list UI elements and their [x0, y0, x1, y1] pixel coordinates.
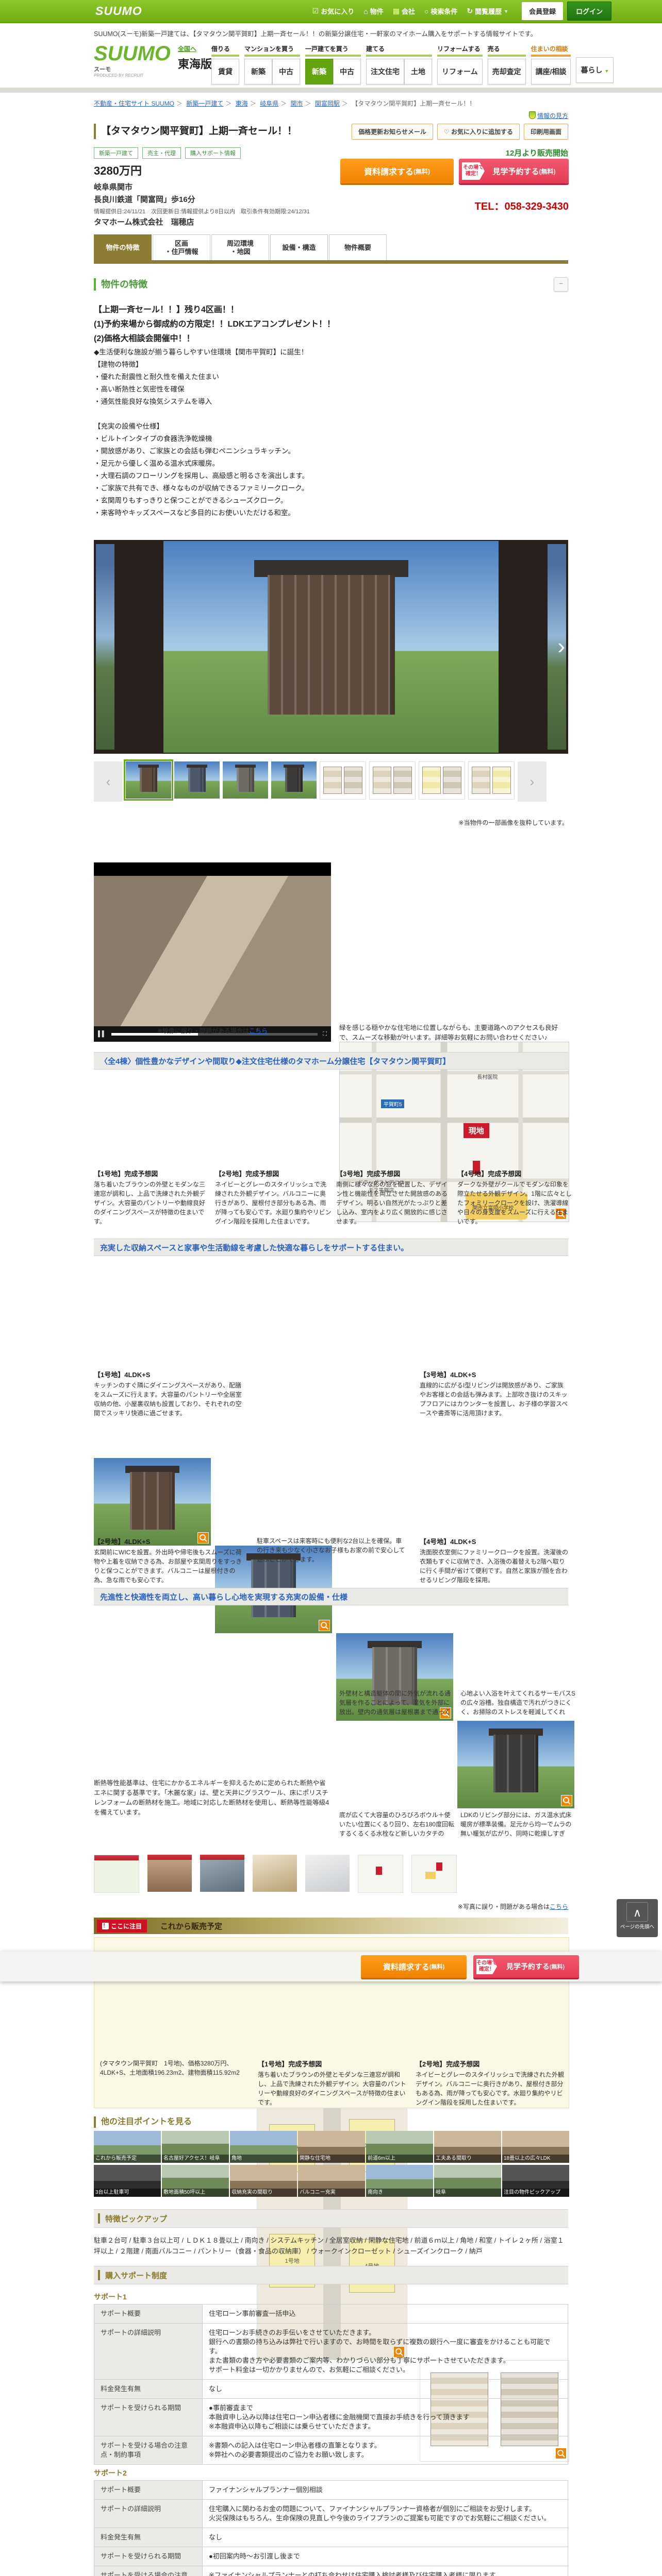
equipment-thumb[interactable] [147, 1855, 192, 1892]
crumb-current: 【タマタウン関平賀町】上期一斉セール！！ [352, 100, 475, 107]
global-nav: ☑お気に入り ⌂物件 ▦会社 ○検索条件 ↻閲覧履歴▼ [312, 6, 508, 16]
point-tile[interactable]: 角地 [230, 2131, 297, 2163]
crumb-sekitomioka[interactable]: 関富岡駅 [315, 100, 340, 107]
info-guide-row: 情報の見方 [94, 111, 568, 120]
gallery-thumb[interactable] [419, 761, 465, 800]
global-header: SUUMO ☑お気に入り ⌂物件 ▦会社 ○検索条件 ↻閲覧履歴▼ 会員登録 ロ… [0, 0, 662, 23]
suumo-logo-main[interactable]: SUUMO スーモ PRODUCED BY RECRUIT [94, 43, 171, 78]
cat-mansion: マンションを買う 新築中古 [244, 44, 300, 84]
point-tile[interactable]: 注目の物件ピックアップ [502, 2165, 569, 2197]
point-tile[interactable]: 閑静な住宅地 [298, 2131, 365, 2163]
suumo-logo-top[interactable]: SUUMO [95, 4, 142, 18]
washstand-caption: 底が広くて大容量のひろびろボウル＋使いたい位置にくるり回り、左右180度回転する… [339, 1810, 455, 1838]
chevron-down-icon: ▼ [504, 9, 508, 14]
tab-chumon[interactable]: 注文住宅 [366, 59, 404, 84]
chevron-down-icon: ▼ [604, 69, 609, 74]
collapse-button[interactable]: − [554, 277, 568, 292]
edition-block: 全国へ 東海版 [178, 44, 212, 72]
gallery-thumb[interactable] [223, 761, 268, 799]
tab-kurashi[interactable]: 暮らし ▼ [576, 57, 614, 83]
tag-shinchiku: 新築一戸建て [94, 147, 138, 159]
thumbs-next-arrow[interactable]: › [518, 761, 547, 802]
tab-underline [94, 260, 568, 264]
gallery-thumb[interactable] [174, 761, 220, 799]
visit-reserve-button[interactable]: その場で 確定！ 見学予約する(無料) [459, 159, 569, 183]
request-docs-button[interactable]: 資料請求する(無料) [340, 159, 454, 183]
equipment-thumb[interactable] [305, 1855, 350, 1892]
nav-search-conditions[interactable]: ○検索条件 [424, 6, 457, 16]
house-caption-2: 【2号地】完成予想図ネイビーとグレーのスタイリッシュで洗練された外観デザイン。バ… [215, 1168, 332, 1226]
support1-label: サポート1 [94, 2292, 568, 2302]
cat-rent: 借りる 賃貸 [211, 44, 239, 84]
nav-favorites[interactable]: ☑お気に入り [312, 6, 355, 16]
house-icon: ⌂ [363, 7, 368, 15]
feature-bullets: ◆生活便利な施設が揃う暮らしやすい住環境【関市平賀町】に誕生！ 【建物の特徴】 … [94, 346, 568, 519]
cat-tateru: 建てる 注文住宅土地 [366, 44, 432, 84]
point-tile[interactable]: 前道6m以上 [366, 2131, 433, 2163]
cat-uru: 売る 売却査定 [488, 44, 526, 84]
building-icon: ▦ [393, 7, 400, 15]
phone-number[interactable]: TEL：058-329-3430 [434, 198, 569, 213]
title-buttons: 価格更新お知らせメール ♡ お気に入りに追加する 印刷用画面 [352, 124, 568, 140]
point-tile[interactable]: 南向き [366, 2165, 433, 2197]
crumb-suumo[interactable]: 不動産・住宅サイト SUUMO [94, 100, 174, 107]
point-tile[interactable]: 3台以上駐車可 [94, 2165, 161, 2197]
nav-properties[interactable]: ⌂物件 [363, 6, 383, 16]
tab-kouza[interactable]: 講座/相談 [531, 59, 571, 84]
property-title-row: 【タマタウン関平賀町】上期一斉セール！！ 価格更新お知らせメール ♡ お気に入り… [94, 124, 568, 140]
breadcrumb: 不動産・住宅サイト SUUMO＞ 新築一戸建て＞ 東海＞ 岐阜県＞ 関市＞ 関富… [94, 99, 568, 108]
cat-reform: リフォームする リフォーム [437, 44, 483, 84]
info-guide-link[interactable]: 情報の見方 [537, 112, 568, 120]
tab-kodate-used[interactable]: 中古 [333, 59, 361, 84]
nav-company[interactable]: ▦会社 [393, 6, 415, 16]
sticky-visit-button[interactable]: その場で 確定！見学予約する(無料) [473, 1955, 579, 1978]
plan-caption-2: 【2号地】4LDK+S玄関前にWICを設置。外出時や帰宅後もスムーズに荷物や上着… [94, 1536, 243, 1585]
plan-caption-1: 【1号地】4LDK+Sキッチンのすぐ隣にダイニングスペースがあり、配膳をスムーズ… [94, 1369, 243, 1418]
ventilation-caption: 外壁材と構造躯体の間に外気が流れる通気層を作ることによって、湿気を外部に放出。壁… [339, 1689, 455, 1717]
point-tile[interactable]: 岐阜 [434, 2165, 501, 2197]
video-report-link[interactable]: こちら [249, 1027, 268, 1035]
gallery-next-arrow[interactable]: › [557, 635, 565, 658]
map-label: 長村医院 [477, 1073, 498, 1080]
point-tile[interactable]: 工夫ある間取り [434, 2131, 501, 2163]
points-heading: 他の注目ポイントを見る [94, 2116, 575, 2128]
plans-banner: 充実した収納スペースと家事や生活動線を考慮した快適な暮らしをサポートする住まい。 [94, 1239, 568, 1256]
page-title: 【タマタウン関平賀町】上期一斉セール！！ [94, 124, 297, 139]
property-video[interactable]: ▌▌ ⛶ [94, 862, 331, 1042]
sale-lines: 【上期一斉セール！！】残り4区画！！(1)予約来場から御成約の方限定！！LDKエ… [94, 303, 568, 346]
category-nav: 借りる 賃貸 マンションを買う 新築中古 一戸建てを買う 新築中古 建てる 注文… [211, 44, 614, 84]
support2-label: サポート2 [94, 2468, 568, 2478]
tab-mansion-new[interactable]: 新築 [244, 59, 272, 84]
thumbs-prev-arrow[interactable]: ‹ [94, 761, 123, 802]
tab-map[interactable]: 周辺環境 ・地図 [211, 234, 269, 261]
on-the-spot-flag: その場で 確定！ [462, 162, 485, 180]
house-image-1 [94, 1458, 211, 1546]
house-image-4 [457, 1721, 574, 1808]
map-label: 平賀町5 [381, 1099, 405, 1108]
gallery-thumb[interactable] [126, 761, 171, 799]
map-genchi-label: 現地 [464, 1123, 489, 1138]
house-caption-3: 【3号地】完成予想図南側に様々な形の窓を配置した、デザイン性と機能性を両立させた… [336, 1168, 453, 1226]
upcoming-caption-2: 【2号地】完成予想図ネイビーとグレーのスタイリッシュで洗練された外観デザイン。バ… [416, 2059, 567, 2107]
point-tile[interactable]: 名古屋好アクセス！岐阜 [162, 2131, 229, 2163]
equipment-thumb[interactable] [200, 1855, 244, 1892]
gallery-thumb[interactable] [271, 761, 317, 799]
tab-reform[interactable]: リフォーム [437, 59, 483, 84]
point-tile[interactable]: 敷地面積50坪以上 [162, 2165, 229, 2197]
property-tags: 新築一戸建て 売主・代理 購入サポート情報 12月より販売開始 [94, 147, 568, 159]
equipment-thumb[interactable] [94, 1855, 139, 1893]
house-caption-4: 【4号地】完成予想図ダークな外壁がクールでモダンな印象を際立たせる外観デザイン。… [457, 1168, 574, 1226]
point-tile[interactable]: バルコニー充実 [298, 2165, 365, 2197]
houses-banner: 〈全4棟〉個性豊かなデザインや間取り◆注文住宅仕様のタマホーム分譲住宅【タマタウ… [94, 1052, 568, 1070]
tag-urinushi: 売主・代理 [142, 147, 181, 159]
gallery-thumb[interactable] [320, 761, 366, 800]
search-icon: ○ [424, 7, 428, 15]
tab-equipment[interactable]: 設備・構造 [270, 234, 328, 261]
bath-caption: 心地よい入浴を叶えてくれるサーモバスSの広々浴槽。独自構造で汚れがつきにくく、お… [460, 1689, 577, 1717]
photo-note: ※写真に誤り・問題がある場合はこちら [94, 1902, 568, 1911]
cat-kurashi: 暮らし ▼ [576, 44, 614, 84]
equipment-thumb[interactable] [253, 1855, 297, 1892]
sticky-cta-bar: 資料請求する(無料) その場で 確定！見学予約する(無料) [0, 1952, 662, 1981]
crumb-shinchiku[interactable]: 新築一戸建て [186, 100, 223, 107]
gallery-main-image [163, 541, 499, 753]
point-tile[interactable]: これから販売予定 [94, 2131, 161, 2163]
insulation-caption: 断熱等性能基準は、住宅にかかるエネルギーを抑えるために定められた断熱や省エネに関… [94, 1778, 331, 1818]
cat-soudan: 住まいの相談 講座/相談 [531, 44, 571, 84]
history-icon: ↻ [467, 7, 473, 15]
signup-button[interactable]: 会員登録 [522, 2, 563, 20]
map-caption: 緑を感じる穏やかな住宅地に位置しながらも、主要道路へのアクセスも良好で、スムーズ… [339, 1023, 568, 1043]
attention-label: ！ここに注目 [97, 1920, 147, 1933]
tag-support[interactable]: 購入サポート情報 [185, 147, 241, 159]
pickup-heading: 特徴ピックアップ [94, 2209, 568, 2228]
support2-table: サポート概要ファイナンシャルプランナー個別相談 サポートの詳細説明住宅購入に関わ… [94, 2480, 568, 2576]
tab-units[interactable]: 区画 ・住戸情報 [153, 234, 210, 261]
point-tile[interactable]: 18畳以上の広々LDK [502, 2131, 569, 2163]
pickup-text: 駐車２台可 / 駐車３台以上可 / ＬＤＫ１８畳以上 / 南向き / システムキ… [94, 2235, 568, 2257]
gallery-note: ※当物件の一部画像を抜粋しています。 [94, 818, 568, 827]
tab-overview[interactable]: 物件概要 [329, 234, 387, 261]
check-icon: ☑ [312, 7, 319, 15]
tab-kodate-new-active[interactable]: 新築 [305, 59, 333, 84]
photo-gallery: › [94, 540, 568, 754]
siteplan-caption: 駐車スペースは来客時にも便利な2台以上を確保。車の行き来も少なく小さなお子様もお… [257, 1536, 406, 1564]
zoom-icon[interactable] [319, 1620, 330, 1631]
sale-status: 12月より販売開始 [506, 147, 568, 158]
property-tabs: 物件の特徴 区画 ・住戸情報 周辺環境 ・地図 設備・構造 物件概要 [94, 234, 568, 261]
site-tagline: SUUMO(スーモ)新築一戸建ては、【タマタウン関平賀町】上期一斉セール！！の新… [94, 28, 568, 38]
up-arrow-icon: ∧ [626, 1902, 648, 1922]
zoom-icon[interactable] [561, 1795, 572, 1806]
tab-features[interactable]: 物件の特徴 [94, 234, 152, 261]
crumb-tokai[interactable]: 東海 [236, 100, 248, 107]
support-heading: 購入サポート制度 [94, 2266, 568, 2284]
gallery-prev-sliver[interactable] [96, 544, 114, 750]
tab-baikyaku[interactable]: 売却査定 [488, 59, 526, 84]
plan-caption-3: 【3号地】4LDK+S直線的に広がるI型リビングは開放感があり、ご家族やお客様と… [420, 1369, 568, 1418]
upcoming-caption-plan: (タマタウン関平賀町 1号地)、価格3280万円、4LDK+S、土地面積196.… [100, 2059, 252, 2077]
shield-icon [529, 111, 536, 119]
login-button[interactable]: ログイン [567, 2, 611, 21]
exclaim-icon: ！ [102, 1923, 109, 1929]
edition-label: 東海版 [178, 55, 212, 72]
tab-mansion-used[interactable]: 中古 [272, 59, 300, 84]
add-favorite-button[interactable]: ♡ お気に入りに追加する [437, 124, 520, 140]
equipment-banner: 先進性と快適性を両立し、高い暮らし心地を実現する充実の設備・仕様 [94, 1588, 568, 1605]
tab-tochi[interactable]: 土地 [404, 59, 432, 84]
nav-history[interactable]: ↻閲覧履歴▼ [467, 6, 508, 16]
crumb-gifu[interactable]: 岐阜県 [260, 100, 278, 107]
tab-chintai[interactable]: 賃貸 [211, 59, 239, 84]
sticky-request-button[interactable]: 資料請求する(無料) [361, 1955, 467, 1978]
house-caption-1: 【1号地】完成予想図落ち着いたブラウンの外壁とモダンな三連窓が調和し、上品で洗練… [94, 1168, 211, 1226]
zenkoku-link[interactable]: 全国へ [178, 44, 212, 53]
gallery-thumbnails: ‹ › [94, 761, 568, 802]
price-alert-button[interactable]: 価格更新お知らせメール [352, 124, 433, 140]
equipment-thumbs [94, 1855, 457, 1893]
point-tile[interactable]: 収納充実の間取り [230, 2165, 297, 2197]
equipment-thumb[interactable] [411, 1855, 457, 1893]
upcoming-caption-1: 【1号地】完成予想図落ち着いたブラウンの外壁とモダンな三連窓が調和し、上品で洗練… [258, 2059, 409, 2107]
photo-report-link[interactable]: こちら [550, 1903, 568, 1910]
gallery-thumb[interactable] [369, 761, 416, 800]
to-top-button[interactable]: ∧ ページの先頭へ [617, 1899, 658, 1937]
plan-caption-4: 【4号地】4LDK+S洗面脱衣室側にファミリークロークを設置。洗濯後の衣類もすぐ… [420, 1536, 568, 1585]
section-features-heading: 物件の特徴 − [94, 278, 568, 291]
nav-divider [0, 88, 662, 93]
equipment-thumb[interactable] [358, 1855, 403, 1893]
gallery-thumb[interactable] [468, 761, 515, 800]
floorheat-caption: LDKのリビング部分には、ガス温水式床暖房が標準装備。足元から均一でムラの無い暖… [460, 1810, 577, 1838]
property-company: タマホーム株式会社 瑞穂店 [94, 216, 568, 227]
upcoming-banner: ！ここに注目 これから販売予定 [94, 1918, 568, 1934]
crumb-seki[interactable]: 関市 [291, 100, 303, 107]
video-frame [94, 876, 331, 1026]
print-button[interactable]: 印刷用画面 [524, 124, 568, 140]
support1-table: サポート概要住宅ローン事前審査一括申込 サポートの詳細説明住宅ローンお手続きのお… [94, 2304, 568, 2465]
video-note: ※映像に誤り・問題がある場合はこちら [94, 1026, 331, 1035]
cat-kodate: 一戸建てを買う 新築中古 [305, 44, 361, 84]
